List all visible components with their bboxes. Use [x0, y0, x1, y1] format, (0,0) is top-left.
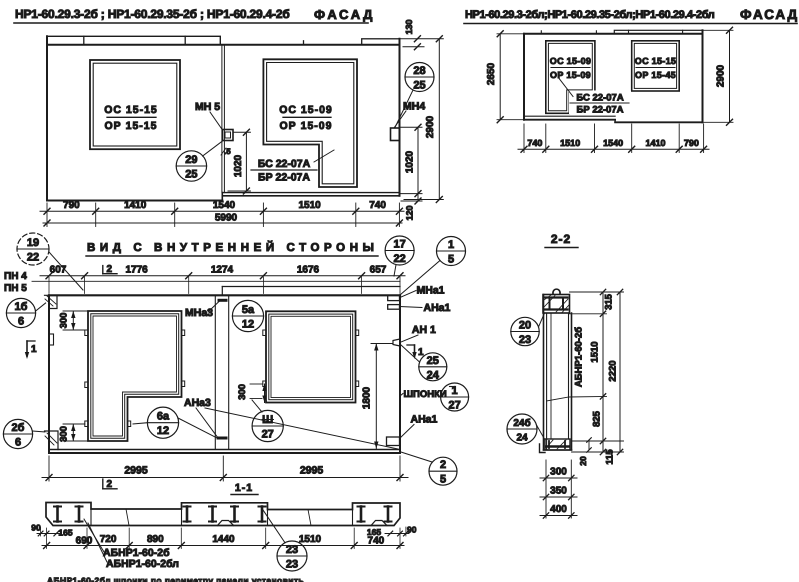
svg-text:22: 22 — [393, 253, 405, 265]
svg-text:24: 24 — [427, 369, 440, 381]
svg-text:ОС 15-09: ОС 15-09 — [279, 104, 333, 116]
svg-text:5990: 5990 — [215, 213, 238, 224]
svg-text:БС 22-07А: БС 22-07А — [576, 93, 624, 104]
svg-text:825: 825 — [591, 410, 602, 427]
svg-text:6: 6 — [15, 437, 21, 449]
svg-text:ОР 15-15: ОР 15-15 — [105, 120, 158, 132]
svg-text:1510: 1510 — [589, 341, 600, 362]
svg-text:1540: 1540 — [603, 138, 623, 148]
svg-text:1: 1 — [31, 344, 37, 355]
svg-text:НР1-60.29.3-2бл;НР1-60.29.35-2: НР1-60.29.3-2бл;НР1-60.29.35-2бл;НР1-60.… — [465, 9, 715, 21]
svg-text:90: 90 — [31, 523, 41, 533]
svg-text:165: 165 — [58, 528, 72, 538]
svg-text:740: 740 — [368, 536, 385, 547]
svg-text:ПН 4: ПН 4 — [4, 271, 27, 282]
svg-text:АБНР1-60-2бл шпонки по перимет: АБНР1-60-2бл шпонки по периметру панели … — [47, 576, 304, 582]
svg-text:12: 12 — [242, 319, 254, 331]
svg-text:23: 23 — [286, 544, 298, 556]
svg-text:740: 740 — [369, 200, 386, 211]
svg-text:6: 6 — [18, 316, 24, 328]
svg-text:ОР 15-09: ОР 15-09 — [550, 70, 591, 80]
svg-text:2900: 2900 — [425, 115, 436, 138]
svg-text:1676: 1676 — [297, 265, 320, 276]
svg-text:19: 19 — [27, 237, 39, 249]
svg-text:400: 400 — [550, 504, 567, 515]
svg-text:23: 23 — [286, 559, 298, 571]
svg-text:ОС 15-15: ОС 15-15 — [635, 56, 676, 66]
svg-text:1410: 1410 — [124, 200, 147, 211]
svg-text:АБНР1-60-2бл: АБНР1-60-2бл — [106, 558, 179, 570]
svg-text:2: 2 — [107, 264, 113, 275]
svg-text:2-2: 2-2 — [551, 232, 571, 246]
svg-text:22: 22 — [27, 252, 39, 264]
svg-text:1510: 1510 — [560, 138, 580, 148]
svg-text:607: 607 — [50, 265, 67, 276]
svg-text:12: 12 — [157, 425, 169, 437]
svg-text:25: 25 — [427, 355, 439, 367]
svg-text:1020: 1020 — [233, 154, 244, 177]
svg-text:690: 690 — [76, 536, 93, 547]
svg-text:.5: .5 — [224, 147, 231, 156]
svg-text:1776: 1776 — [125, 265, 148, 276]
svg-text:АН 1: АН 1 — [412, 324, 436, 336]
svg-text:23: 23 — [519, 334, 531, 346]
svg-text:ФАСАД: ФАСАД — [314, 7, 375, 22]
svg-text:2б: 2б — [12, 422, 25, 434]
svg-text:24б: 24б — [513, 418, 530, 429]
svg-text:790: 790 — [63, 200, 80, 211]
svg-text:300: 300 — [550, 467, 567, 478]
svg-text:300: 300 — [237, 384, 248, 400]
svg-text:ОР 15-45: ОР 15-45 — [635, 70, 676, 80]
svg-text:1540: 1540 — [213, 200, 236, 211]
svg-text:ПН 5: ПН 5 — [4, 283, 27, 294]
svg-text:6а: 6а — [157, 411, 170, 423]
svg-text:2995: 2995 — [300, 465, 324, 477]
svg-text:1б: 1б — [15, 301, 28, 313]
svg-text:29: 29 — [185, 154, 197, 166]
svg-text:115: 115 — [605, 449, 616, 465]
svg-text:1510: 1510 — [299, 534, 322, 545]
svg-text:ВИД С ВНУТРЕННЕЙ СТОРОНЫ: ВИД С ВНУТРЕННЕЙ СТОРОНЫ — [87, 240, 378, 254]
svg-text:120: 120 — [404, 205, 414, 220]
svg-text:90: 90 — [407, 525, 417, 535]
svg-text:МНа3: МНа3 — [185, 307, 213, 319]
svg-text:2995: 2995 — [124, 465, 148, 477]
svg-text:740: 740 — [527, 138, 542, 148]
svg-text:АНа1: АНа1 — [411, 414, 438, 426]
svg-text:5а: 5а — [242, 304, 255, 316]
svg-text:300: 300 — [59, 313, 70, 329]
svg-text:24: 24 — [516, 433, 528, 444]
svg-text:350: 350 — [550, 486, 567, 497]
svg-text:МНа1: МНа1 — [417, 285, 445, 297]
svg-text:БР 22-07А: БР 22-07А — [258, 172, 310, 184]
svg-text:ФАСАД: ФАСАД — [740, 7, 799, 22]
svg-text:АБНР1-60-2б: АБНР1-60-2б — [574, 327, 585, 387]
svg-text:315: 315 — [603, 293, 614, 310]
svg-text:27: 27 — [448, 400, 460, 412]
svg-text:ОС 15-15: ОС 15-15 — [104, 104, 158, 116]
svg-text:790: 790 — [684, 138, 699, 148]
svg-text:НР1-60.29.3-2б ; НР1-60.29.35-: НР1-60.29.3-2б ; НР1-60.29.35-2б ; НР1-6… — [15, 7, 290, 21]
svg-text:1510: 1510 — [298, 200, 321, 211]
svg-text:МН 5: МН 5 — [195, 101, 220, 113]
svg-text:2650: 2650 — [486, 62, 497, 85]
svg-text:БС 22-07А: БС 22-07А — [258, 158, 311, 170]
svg-text:25: 25 — [185, 169, 197, 181]
svg-text:890: 890 — [147, 534, 164, 545]
svg-text:БР 22-07А: БР 22-07А — [577, 105, 624, 116]
svg-text:1410: 1410 — [645, 138, 665, 148]
svg-text:1: 1 — [448, 239, 454, 251]
svg-text:5: 5 — [448, 254, 454, 266]
svg-text:130: 130 — [404, 19, 414, 34]
svg-text:28: 28 — [413, 65, 425, 77]
svg-text:720: 720 — [100, 534, 117, 545]
svg-text:17: 17 — [393, 239, 405, 251]
svg-text:АНа1: АНа1 — [424, 302, 451, 314]
svg-text:1-1: 1-1 — [235, 482, 253, 494]
svg-text:1274: 1274 — [211, 265, 234, 276]
svg-text:657: 657 — [370, 265, 387, 276]
svg-text:1020: 1020 — [404, 150, 415, 173]
svg-text:АНа3: АНа3 — [184, 397, 211, 409]
svg-text:1440: 1440 — [212, 534, 235, 545]
svg-text:2900: 2900 — [716, 64, 727, 87]
svg-text:2220: 2220 — [608, 360, 619, 381]
svg-text:1800: 1800 — [362, 386, 373, 409]
svg-text:20: 20 — [578, 456, 588, 466]
svg-text:300: 300 — [59, 426, 70, 442]
svg-text:2: 2 — [107, 479, 113, 490]
svg-text:25: 25 — [413, 80, 425, 92]
svg-text:20: 20 — [519, 320, 531, 332]
svg-text:ОР 15-09: ОР 15-09 — [280, 120, 333, 132]
svg-text:5: 5 — [440, 474, 446, 486]
svg-text:2: 2 — [440, 459, 446, 471]
svg-text:27: 27 — [262, 429, 274, 441]
svg-text:ОС 15-09: ОС 15-09 — [550, 56, 591, 66]
